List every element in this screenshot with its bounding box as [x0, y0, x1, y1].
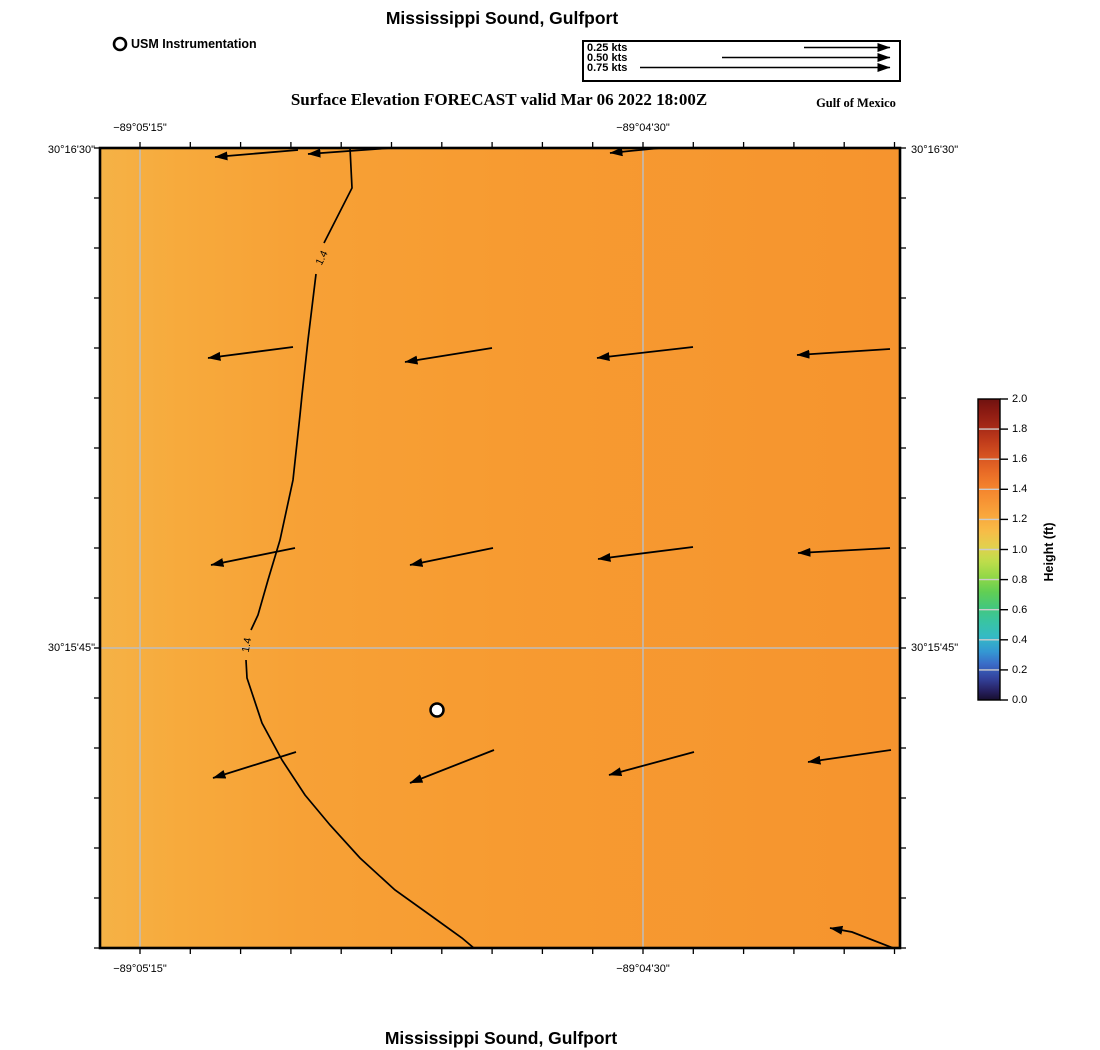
station-legend-icon: [114, 38, 126, 50]
colorbar-tick-label: 0.0: [1012, 694, 1027, 706]
station-legend-label: USM Instrumentation: [131, 37, 257, 51]
colorbar-tick-label: 0.4: [1012, 634, 1027, 646]
colorbar-tick-label: 1.2: [1012, 513, 1027, 525]
colorbar-tick-label: 1.6: [1012, 453, 1027, 465]
colorbar-ticks: [1000, 399, 1008, 700]
speed-legend-box: [582, 40, 901, 82]
y-axis-label-left: 30°15'45": [48, 642, 95, 654]
x-axis-label-bottom: −89°05'15": [113, 963, 167, 975]
forecast-subtitle: Surface Elevation FORECAST valid Mar 06 …: [291, 90, 707, 110]
speed-legend-label: 0.75 kts: [587, 62, 627, 74]
x-axis-label-top: −89°05'15": [113, 122, 167, 134]
x-axis-label-top: −89°04'30": [616, 122, 670, 134]
colorbar-tick-label: 0.8: [1012, 574, 1027, 586]
contour-level-label: 1.4: [240, 637, 254, 653]
map-fill: [100, 148, 900, 948]
footer-title: Mississippi Sound, Gulfport: [385, 1028, 617, 1049]
plot-canvas: [0, 0, 1100, 1050]
colorbar-tick-label: 1.8: [1012, 423, 1027, 435]
page-title: Mississippi Sound, Gulfport: [386, 8, 618, 29]
page: { "header": { "title": "Mississippi Soun…: [0, 0, 1100, 1050]
x-axis-label-bottom: −89°04'30": [616, 963, 670, 975]
colorbar-tick-label: 2.0: [1012, 393, 1027, 405]
y-axis-label-right: 30°15'45": [911, 642, 958, 654]
y-axis-label-right: 30°16'30": [911, 144, 958, 156]
colorbar-tick-label: 0.2: [1012, 664, 1027, 676]
colorbar-tick-label: 1.0: [1012, 544, 1027, 556]
colorbar-axis-label: Height (ft): [1042, 522, 1056, 581]
region-label: Gulf of Mexico: [816, 96, 896, 111]
colorbar-tick-label: 0.6: [1012, 604, 1027, 616]
y-axis-label-left: 30°16'30": [48, 144, 95, 156]
colorbar-tick-label: 1.4: [1012, 483, 1027, 495]
station-marker: [431, 704, 444, 717]
